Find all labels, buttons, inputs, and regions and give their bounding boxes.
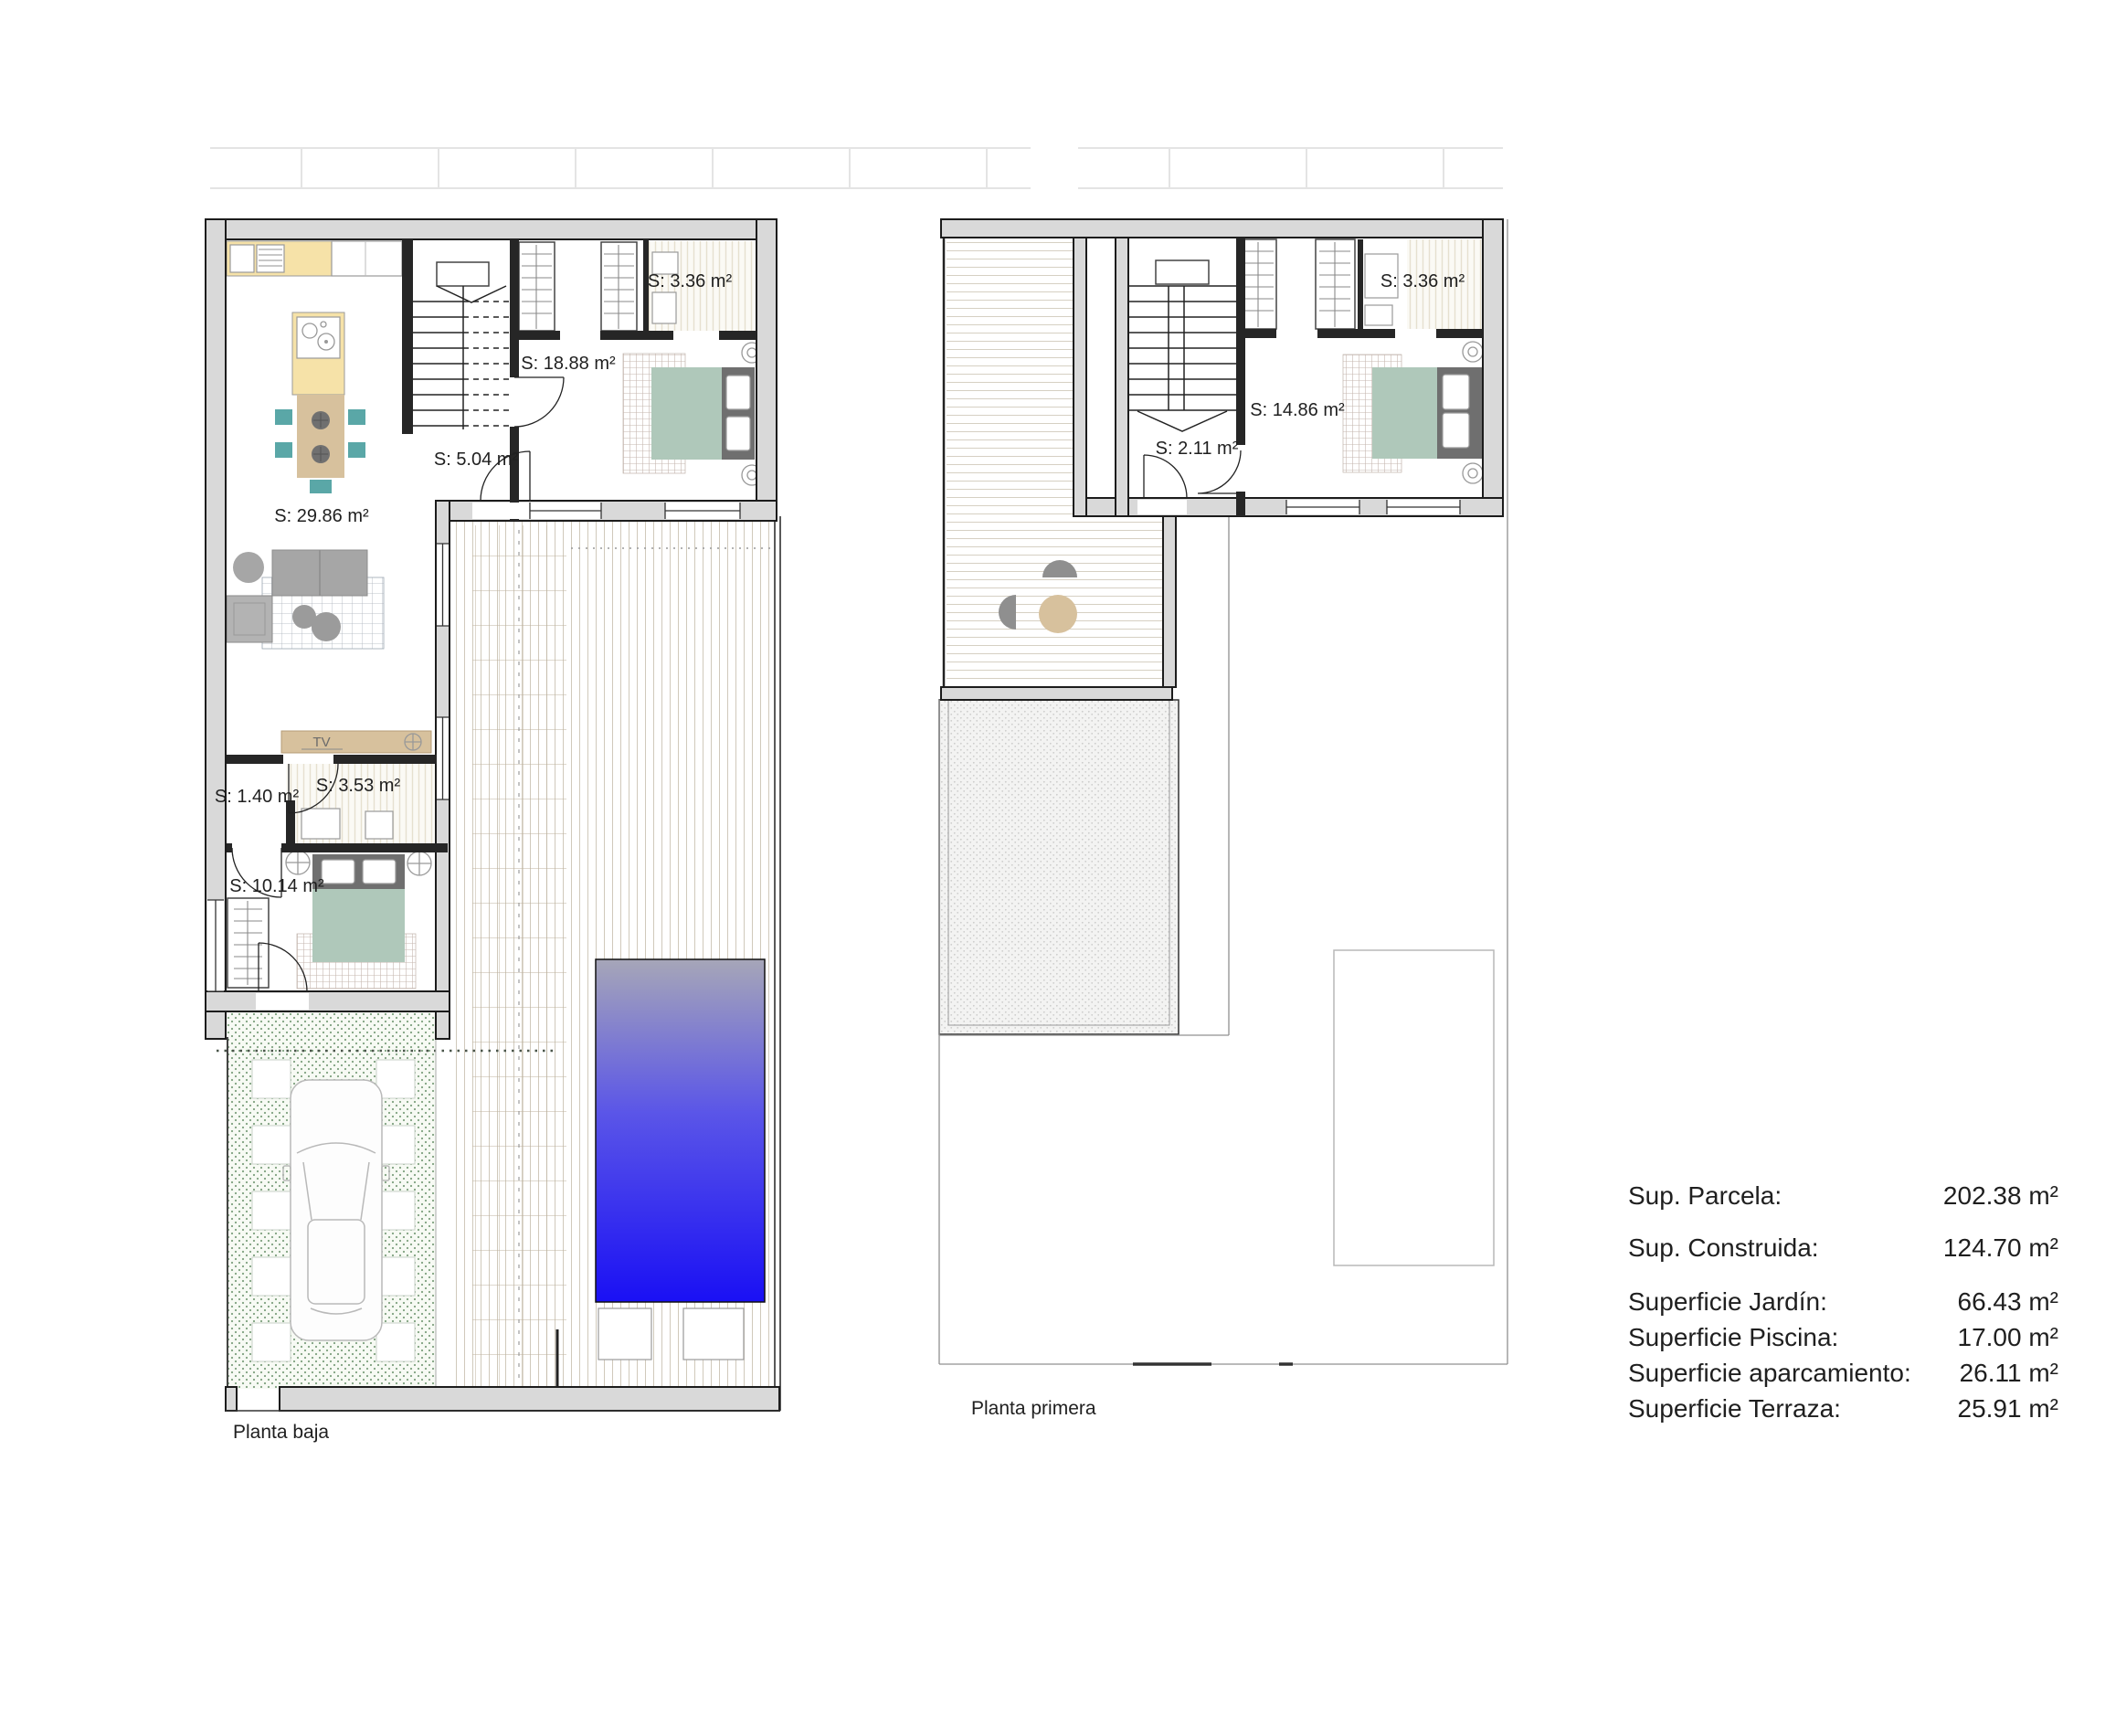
legend-label: Sup. Parcela: (1628, 1181, 1782, 1210)
room-label-bath-small: S: 3.53 m² (316, 776, 401, 796)
room-label-bedroom-upper: S: 14.86 m² (1250, 400, 1345, 420)
bed (312, 889, 405, 962)
area-legend: Sup. Parcela: 202.38 m² Sup. Construida:… (1628, 1181, 2058, 1423)
stairs-upper (1128, 260, 1236, 431)
legend-value: 17.00 m² (1958, 1323, 2059, 1351)
room-label-bedroom-main: S: 18.88 m² (521, 354, 616, 374)
sun-lounger (683, 1308, 744, 1360)
dining-set (275, 395, 365, 493)
tv-unit: TV (281, 731, 431, 753)
kitchen (227, 241, 402, 395)
legend-label: Superficie Jardín: (1628, 1287, 1827, 1316)
windows-upper (1137, 500, 1460, 514)
pool (596, 959, 765, 1302)
side-table-round (233, 552, 264, 583)
legend-label: Sup. Construida: (1628, 1233, 1819, 1262)
room-label-hall-small: S: 1.40 m² (215, 787, 300, 807)
legend-value: 202.38 m² (1943, 1181, 2058, 1210)
bed (651, 367, 722, 460)
pouf (312, 612, 341, 641)
floorplan-canvas: TV (0, 0, 2105, 1736)
stairs (413, 262, 510, 429)
legend-value: 26.11 m² (1960, 1359, 2058, 1387)
room-label-bedroom-2: S: 10.14 m² (229, 876, 324, 896)
planta-baja-plan: TV (206, 219, 780, 1443)
plan-title-primera: Planta primera (971, 1398, 1096, 1419)
car (283, 1080, 389, 1340)
legend-value: 25.91 m² (1958, 1394, 2059, 1423)
floorplan-document: TV (0, 0, 2105, 1736)
room-label-hall-upper: S: 2.11 m² (1156, 439, 1239, 459)
shower (301, 809, 340, 839)
fridge (230, 245, 254, 272)
sun-lounger (598, 1308, 651, 1360)
ground-deck (450, 516, 780, 1411)
neighbor-context-lines (210, 148, 1503, 188)
room-label-bath-upper: S: 3.36 m² (1380, 271, 1465, 291)
toilet (1365, 305, 1392, 325)
terrace-table (1039, 595, 1077, 633)
upper-terrace (944, 219, 1163, 700)
room-label-hall: S: 5.04 m² (434, 450, 519, 470)
bed (1372, 367, 1437, 459)
legend-label: Superficie Terraza: (1628, 1394, 1841, 1423)
legend-label: Superficie Piscina: (1628, 1323, 1838, 1351)
legend-label: Superficie aparcamiento: (1628, 1359, 1911, 1387)
pool-outline (1334, 950, 1494, 1265)
living-set (227, 550, 384, 649)
planta-primera-plan: S: 3.36 m² S: 14.86 m² S: 2.11 m² Planta… (939, 219, 1507, 1419)
room-label-bath-top: S: 3.36 m² (648, 271, 733, 291)
dining-table (297, 395, 344, 478)
washbasin (365, 811, 393, 839)
room-label-living: S: 29.86 m² (274, 506, 369, 526)
legend-value: 66.43 m² (1958, 1287, 2059, 1316)
tv-label: TV (312, 735, 330, 750)
plan-title-baja: Planta baja (233, 1422, 329, 1443)
legend-value: 124.70 m² (1943, 1233, 2058, 1262)
toilet (652, 292, 676, 323)
